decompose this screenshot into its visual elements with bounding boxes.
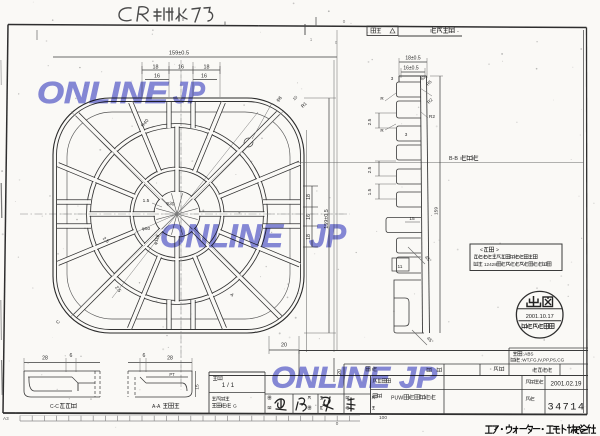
svg-text:11: 11 (398, 264, 403, 270)
svg-text:2.5: 2.5 (367, 166, 373, 173)
svg-text:18: 18 (306, 194, 312, 200)
svg-text:2001.02.19: 2001.02.19 (551, 381, 583, 388)
svg-text:φ30: φ30 (166, 200, 176, 207)
svg-text:A-A: A-A (152, 404, 161, 410)
svg-text:JP: JP (309, 218, 347, 254)
svg-text:R2: R2 (429, 114, 435, 120)
svg-text:JP: JP (173, 75, 205, 110)
svg-text:6: 6 (70, 353, 73, 359)
svg-text:0: 0 (336, 421, 339, 426)
svg-text:2.5: 2.5 (367, 118, 373, 125)
svg-text:C-C: C-C (50, 404, 59, 410)
svg-text:6: 6 (143, 353, 146, 359)
svg-text:15: 15 (409, 216, 415, 222)
svg-text:18±0.5: 18±0.5 (405, 56, 420, 62)
svg-text:JP: JP (399, 362, 438, 395)
svg-text:ONLINE: ONLINE (271, 362, 391, 395)
svg-text:15: 15 (195, 384, 201, 390)
svg-text:G: G (233, 403, 237, 409)
svg-text:16: 16 (178, 65, 184, 71)
svg-text:A3: A3 (3, 416, 9, 421)
svg-text:>: > (496, 248, 499, 254)
svg-text:18: 18 (204, 65, 210, 71)
svg-text:φ60: φ60 (142, 226, 151, 232)
svg-text:20: 20 (281, 343, 287, 349)
svg-text::ABS: :ABS (523, 352, 533, 357)
svg-text:ONLINE: ONLINE (160, 218, 285, 254)
svg-text:34714: 34714 (547, 403, 585, 414)
svg-text:28: 28 (167, 356, 173, 362)
svg-text:ONLINE: ONLINE (37, 75, 169, 110)
svg-text:<: < (480, 248, 483, 254)
svg-text:1.5: 1.5 (143, 198, 150, 204)
svg-text:18: 18 (153, 65, 159, 71)
svg-text:100: 100 (379, 415, 387, 421)
svg-text:16±0.5: 16±0.5 (403, 66, 418, 72)
svg-text:3: 3 (391, 76, 394, 81)
svg-text:1.5: 1.5 (367, 188, 373, 195)
svg-text:28: 28 (42, 356, 48, 362)
svg-text:12428: 12428 (484, 262, 497, 267)
svg-text:PT: PT (169, 372, 175, 377)
svg-text:B-B: B-B (449, 156, 458, 162)
svg-text:1 / 1: 1 / 1 (222, 382, 235, 389)
svg-text::WT,FG,IV,PP,PS,CG: :WT,FG,IV,PP,PS,CG (521, 358, 565, 363)
svg-text:159±0.5: 159±0.5 (169, 51, 189, 57)
svg-text:PUW: PUW (391, 396, 403, 402)
svg-text:3: 3 (405, 132, 408, 137)
svg-text:2001.10.17: 2001.10.17 (526, 314, 554, 320)
svg-text:159: 159 (434, 207, 440, 215)
